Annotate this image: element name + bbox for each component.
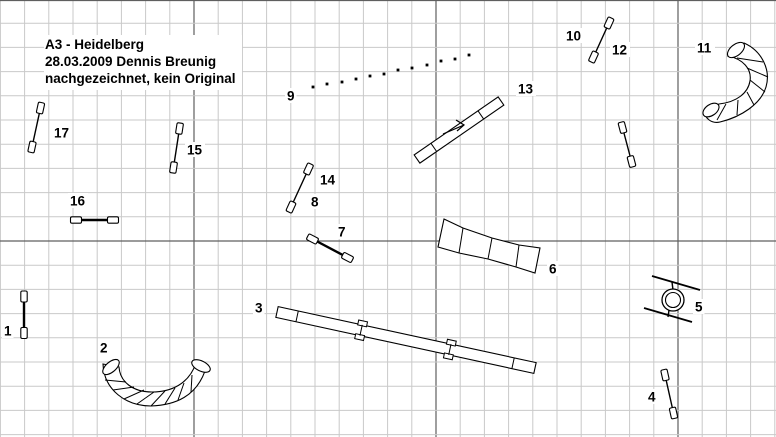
obstacle-number-12: 12 xyxy=(612,43,627,58)
obstacle-jump-4 xyxy=(661,369,678,419)
jump-wing xyxy=(627,155,636,167)
tire-frame-post xyxy=(668,310,669,317)
obstacle-number-16: 16 xyxy=(70,194,86,209)
jump-wing xyxy=(28,141,37,153)
obstacle-number-7: 7 xyxy=(338,225,346,240)
jump-wing xyxy=(170,162,178,174)
obstacle-number-15: 15 xyxy=(187,143,203,158)
weave-pole xyxy=(383,73,386,76)
obstacle-weave-9 xyxy=(312,54,471,89)
jump-wing xyxy=(588,51,598,64)
weave-pole xyxy=(369,75,372,78)
obstacle-number-4: 4 xyxy=(648,390,656,405)
title-line-3: nachgezeichnet, kein Original xyxy=(45,70,236,87)
weave-pole xyxy=(440,60,443,63)
obstacle-jump-17 xyxy=(28,102,45,153)
jump-wing xyxy=(303,163,313,176)
jump-wing xyxy=(306,234,319,245)
obstacle-tunnel-2 xyxy=(100,357,212,406)
jump-wing xyxy=(618,121,627,133)
obstacle-number-8: 8 xyxy=(311,195,319,210)
jump-wing xyxy=(341,252,354,263)
obstacle-jump-1 xyxy=(21,291,27,339)
tunnel-body xyxy=(103,363,205,406)
weave-pole xyxy=(312,86,315,89)
obstacle-number-6: 6 xyxy=(549,262,557,277)
obstacle-number-17: 17 xyxy=(54,126,69,141)
jump-wing xyxy=(108,217,119,223)
weave-pole xyxy=(397,69,400,72)
obstacle-number-2: 2 xyxy=(100,341,108,356)
obstacle-number-14: 14 xyxy=(320,173,336,188)
obstacle-number-10: 10 xyxy=(566,29,581,44)
obstacle-seesaw-13 xyxy=(414,97,504,163)
weave-pole xyxy=(454,58,457,61)
obstacle-tire-5 xyxy=(644,276,700,322)
title-block: A3 - Heidelberg 28.03.2009 Dennis Breuni… xyxy=(44,35,242,90)
tire-frame-bar xyxy=(652,276,700,290)
weave-pole xyxy=(426,64,429,67)
jump-wing xyxy=(21,291,27,302)
title-line-2: 28.03.2009 Dennis Breunig xyxy=(45,53,236,70)
title-line-1: A3 - Heidelberg xyxy=(45,36,236,53)
jump-wing xyxy=(286,201,296,214)
obstacle-jump-15 xyxy=(170,123,184,174)
jump-wing xyxy=(21,328,27,339)
jump-wing xyxy=(661,369,670,381)
jump-wing xyxy=(669,407,678,419)
obstacle-number-1: 1 xyxy=(4,324,12,339)
obstacle-number-13: 13 xyxy=(518,82,534,97)
weave-pole xyxy=(468,54,471,57)
jump-wing xyxy=(176,123,184,135)
jump-bar xyxy=(291,169,309,207)
obstacle-number-9: 9 xyxy=(287,89,295,104)
course-map: 1234567814910121113151617 A3 - Heidelber… xyxy=(0,0,776,437)
obstacle-number-5: 5 xyxy=(695,300,703,315)
jump-wing xyxy=(36,102,45,114)
weave-pole xyxy=(326,83,329,86)
obstacle-number-11: 11 xyxy=(697,41,712,56)
weave-pole xyxy=(411,67,414,70)
jump-wing xyxy=(71,217,82,223)
obstacle-number-3: 3 xyxy=(255,301,263,316)
weave-pole xyxy=(355,78,358,81)
weave-pole xyxy=(341,81,344,84)
obstacle-jump-16 xyxy=(71,217,119,223)
